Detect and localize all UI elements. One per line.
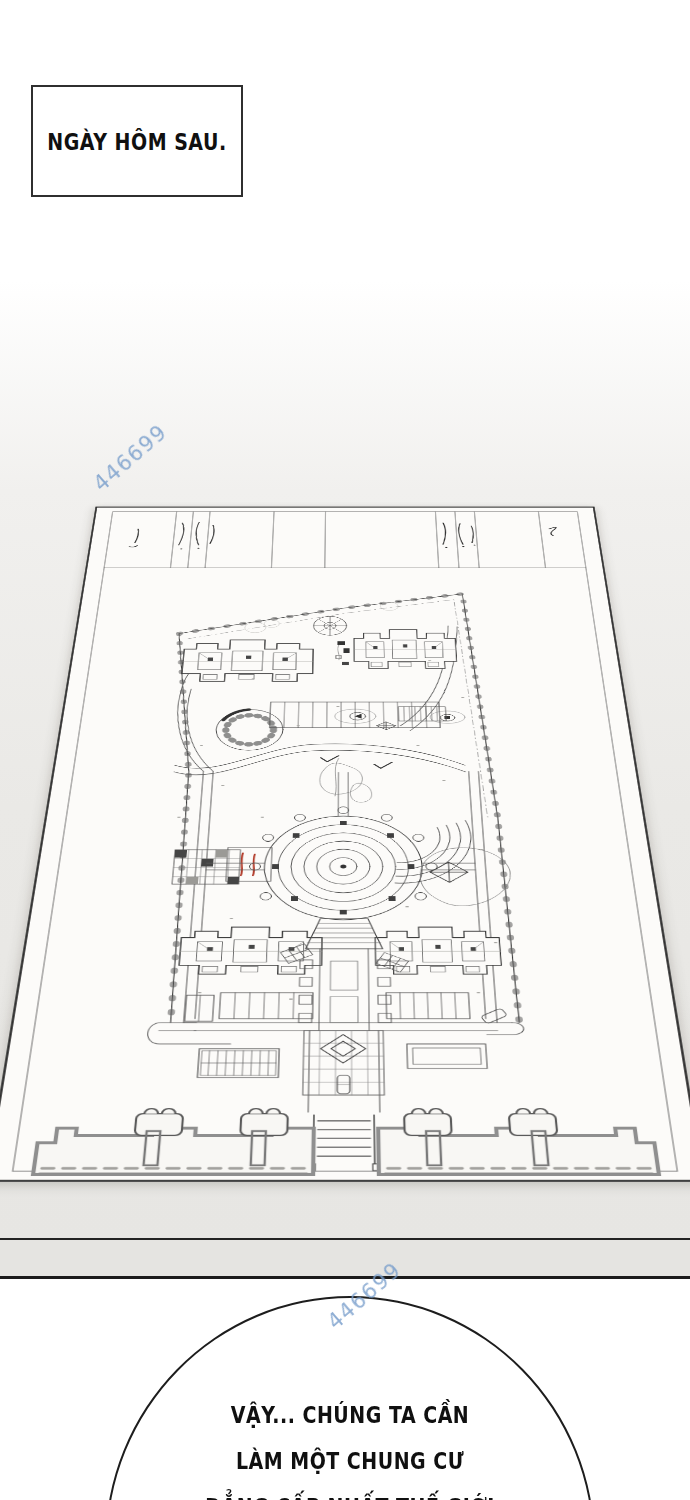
apartment-clusters [153, 630, 502, 974]
garden-icons [335, 707, 466, 730]
title-strip-annotations [129, 522, 559, 549]
speech-bubble-text: VẬY... CHÚNG TA CẦN LÀM MỘT CHUNG CƯ ĐẲN… [107, 1392, 593, 1500]
lower-parking [180, 993, 512, 1078]
entrance-podiums [33, 1109, 659, 1175]
west-garden [172, 710, 395, 885]
caption-box: NGÀY HÔM SAU. [31, 85, 243, 197]
blueprint-sheet [0, 507, 690, 1182]
caption-text: NGÀY HÔM SAU. [47, 128, 226, 155]
perspective-scene [0, 0, 690, 1500]
site-plan-drawing [0, 507, 690, 1182]
bubble-line-3: ĐẲNG CẤP NHẤT THẾ GIỚI [107, 1480, 593, 1500]
water-feature [319, 758, 372, 802]
